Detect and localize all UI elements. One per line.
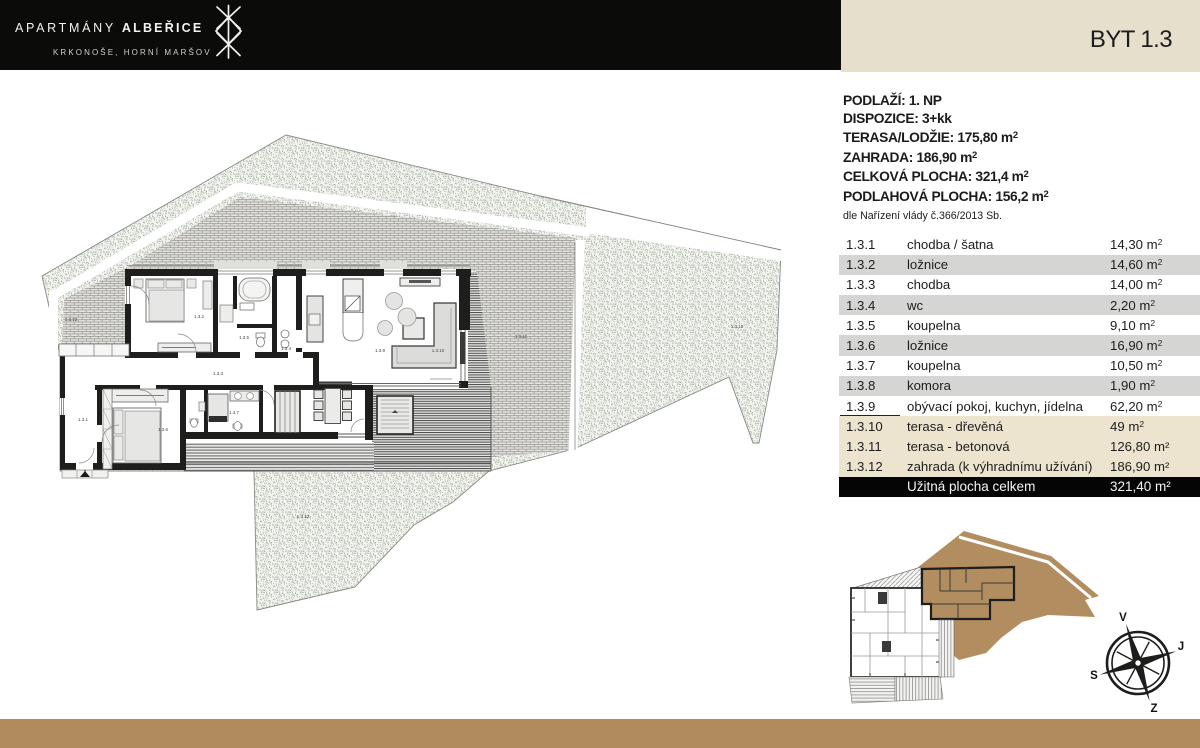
svg-text:1.3.9: 1.3.9 [375,348,386,353]
svg-text:1.3.10: 1.3.10 [432,348,445,353]
svg-text:1.3.11: 1.3.11 [515,334,528,339]
svg-text:1.3.5: 1.3.5 [239,335,250,340]
svg-text:1.3.6: 1.3.6 [158,427,169,432]
svg-text:J: J [1178,641,1184,653]
svg-text:1.3.12: 1.3.12 [297,514,310,519]
svg-text:Z: Z [1150,703,1157,715]
svg-text:1.3.12: 1.3.12 [65,317,78,322]
svg-text:1.3.12: 1.3.12 [731,324,744,329]
svg-text:1.3.1: 1.3.1 [78,417,89,422]
svg-text:1.3.2: 1.3.2 [194,314,205,319]
svg-text:S: S [1090,670,1098,682]
svg-text:1.3.3: 1.3.3 [213,371,224,376]
svg-text:1.3.7: 1.3.7 [229,410,240,415]
svg-text:V: V [1119,612,1127,624]
svg-text:1.3.4: 1.3.4 [281,346,292,351]
